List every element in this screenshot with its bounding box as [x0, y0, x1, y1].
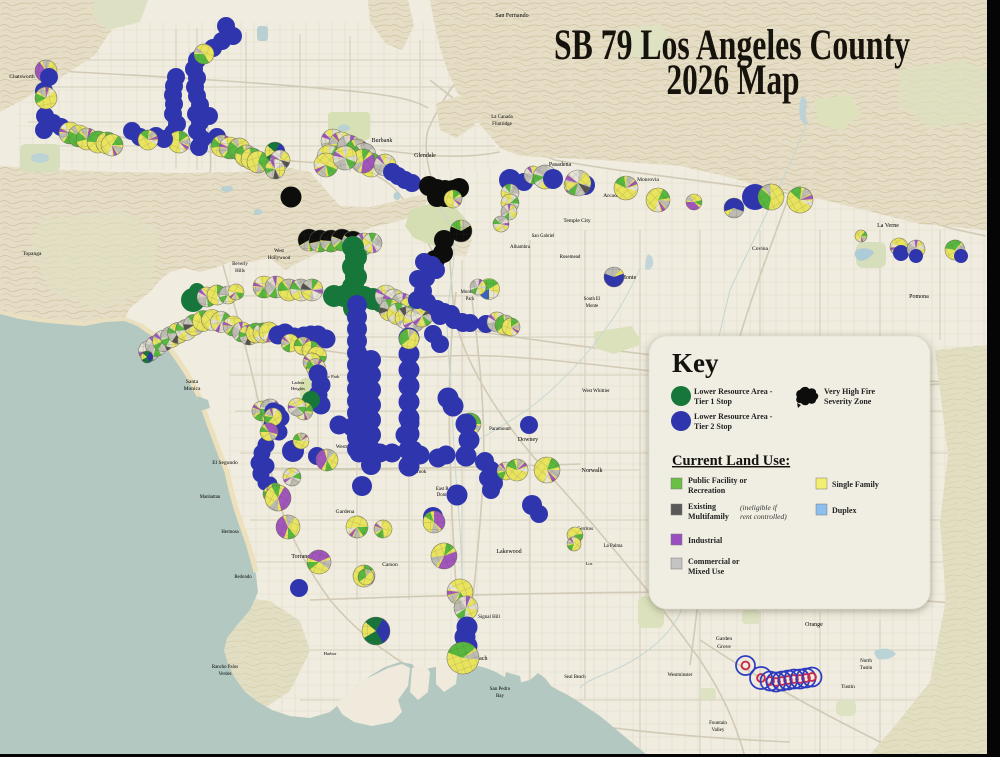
- svg-text:Grove: Grove: [717, 644, 731, 650]
- svg-text:Redondo: Redondo: [234, 575, 252, 580]
- svg-text:Lakewood: Lakewood: [496, 549, 521, 555]
- svg-text:Tier 1 Stop: Tier 1 Stop: [694, 397, 732, 406]
- svg-text:Burbank: Burbank: [372, 138, 393, 144]
- svg-text:Severity Zone: Severity Zone: [824, 397, 872, 406]
- svg-text:Public Facility or: Public Facility or: [688, 476, 748, 485]
- svg-text:Alhambra: Alhambra: [510, 245, 531, 250]
- svg-text:Recreation: Recreation: [688, 486, 726, 495]
- svg-text:El Segundo: El Segundo: [212, 460, 238, 466]
- svg-text:Temple City: Temple City: [563, 218, 591, 224]
- svg-text:Seal Beach: Seal Beach: [564, 675, 586, 680]
- svg-text:Paramount: Paramount: [489, 427, 511, 432]
- svg-text:Garden: Garden: [716, 636, 732, 642]
- svg-text:Hollywood: Hollywood: [268, 256, 291, 261]
- svg-text:Lower Resource Area -: Lower Resource Area -: [694, 412, 773, 421]
- svg-text:Chatsworth: Chatsworth: [9, 74, 35, 80]
- svg-text:Heights: Heights: [291, 386, 305, 391]
- svg-text:West Whittier: West Whittier: [582, 389, 610, 394]
- svg-text:Monte: Monte: [586, 304, 599, 309]
- svg-text:Multifamily: Multifamily: [688, 512, 729, 521]
- svg-text:Valley: Valley: [712, 728, 725, 733]
- svg-text:Covina: Covina: [752, 246, 768, 252]
- svg-text:Tustin: Tustin: [841, 684, 855, 690]
- svg-text:Ladera: Ladera: [292, 380, 305, 385]
- svg-text:West: West: [274, 249, 284, 254]
- svg-text:North: North: [860, 659, 872, 664]
- svg-text:Lower Resource Area -: Lower Resource Area -: [694, 387, 773, 396]
- svg-text:Bay: Bay: [496, 694, 505, 699]
- svg-text:Monrovia: Monrovia: [637, 177, 659, 183]
- svg-text:Norwalk: Norwalk: [582, 468, 603, 474]
- svg-text:Manhattan: Manhattan: [200, 495, 221, 500]
- svg-text:Hermosa: Hermosa: [221, 530, 239, 535]
- svg-text:Harbor: Harbor: [324, 651, 337, 656]
- svg-text:Tier 2 Stop: Tier 2 Stop: [694, 422, 732, 431]
- svg-text:Key: Key: [672, 348, 719, 378]
- svg-text:Santa: Santa: [186, 379, 199, 385]
- svg-text:Single Family: Single Family: [832, 480, 879, 489]
- svg-text:San Fernando: San Fernando: [495, 13, 528, 19]
- svg-text:Current Land Use:: Current Land Use:: [672, 453, 790, 469]
- svg-text:Park: Park: [466, 297, 475, 302]
- svg-text:Signal Hill: Signal Hill: [478, 615, 500, 620]
- svg-text:Gardena: Gardena: [336, 509, 355, 515]
- svg-text:Flintridge: Flintridge: [492, 122, 513, 127]
- svg-text:Mixed Use: Mixed Use: [688, 567, 725, 576]
- svg-text:La Palma: La Palma: [603, 544, 623, 549]
- svg-text:Rosemead: Rosemead: [560, 255, 581, 260]
- svg-text:Carson: Carson: [382, 562, 398, 568]
- svg-text:La Canada: La Canada: [491, 115, 513, 120]
- svg-text:Existing: Existing: [688, 502, 716, 511]
- svg-text:Glendale: Glendale: [414, 153, 436, 159]
- svg-text:Monica: Monica: [184, 386, 201, 392]
- svg-text:Rancho Palos: Rancho Palos: [212, 665, 238, 670]
- svg-text:Hills: Hills: [235, 269, 245, 274]
- svg-text:Verdes: Verdes: [218, 672, 231, 677]
- svg-text:Beverly: Beverly: [232, 262, 248, 267]
- svg-text:Fountain: Fountain: [709, 721, 727, 726]
- svg-text:Westminster: Westminster: [668, 673, 693, 678]
- svg-text:(ineligible if: (ineligible if: [740, 503, 778, 512]
- svg-text:2026 Map: 2026 Map: [667, 57, 800, 104]
- svg-text:San Pedro: San Pedro: [490, 687, 511, 692]
- svg-text:Orange: Orange: [805, 622, 823, 628]
- svg-text:Commercial or: Commercial or: [688, 557, 740, 566]
- svg-text:Topanga: Topanga: [23, 251, 42, 257]
- svg-text:Very High Fire: Very High Fire: [824, 387, 876, 396]
- svg-text:La Verne: La Verne: [877, 223, 899, 229]
- svg-text:rent controlled): rent controlled): [740, 512, 787, 521]
- svg-text:Los: Los: [586, 561, 593, 566]
- svg-text:South El: South El: [584, 297, 601, 302]
- svg-text:San Gabriel: San Gabriel: [532, 234, 555, 239]
- svg-text:Duplex: Duplex: [832, 506, 856, 515]
- svg-text:Tustin: Tustin: [860, 666, 873, 671]
- svg-text:Downey: Downey: [518, 437, 538, 443]
- svg-text:Industrial: Industrial: [688, 536, 723, 545]
- svg-text:Pomona: Pomona: [909, 294, 929, 300]
